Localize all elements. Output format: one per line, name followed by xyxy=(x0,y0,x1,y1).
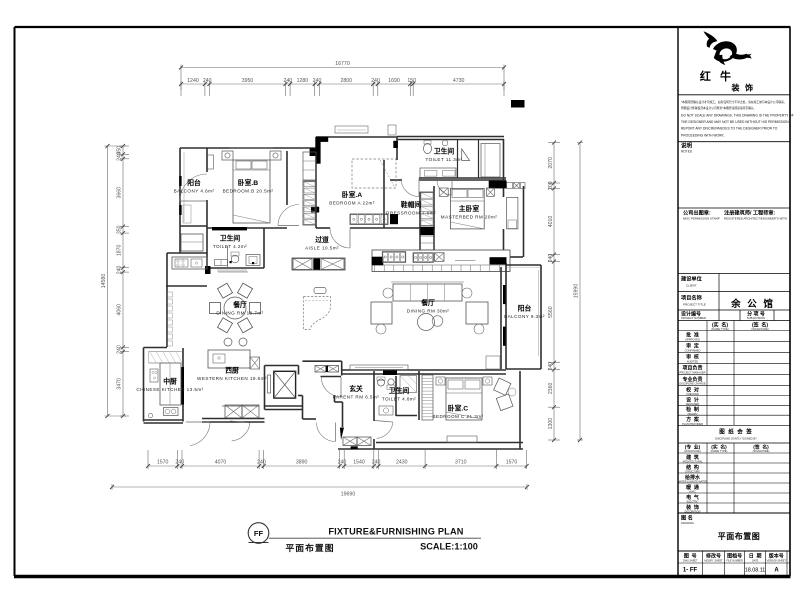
svg-text:3660: 3660 xyxy=(116,187,122,199)
svg-text:DRESSROOM 7.6m²: DRESSROOM 7.6m² xyxy=(386,211,436,216)
svg-text:DRAWN: DRAWN xyxy=(688,412,698,416)
svg-text:240: 240 xyxy=(116,345,122,354)
svg-text:过道: 过道 xyxy=(315,235,329,244)
svg-text:BEDROOM A 22m²: BEDROOM A 22m² xyxy=(329,201,375,206)
svg-text:AISLE 10.5m²: AISLE 10.5m² xyxy=(305,246,339,251)
svg-text:西厨: 西厨 xyxy=(225,366,239,375)
svg-text:1870: 1870 xyxy=(116,245,122,257)
svg-text:240: 240 xyxy=(257,460,266,466)
svg-text:3710: 3710 xyxy=(455,460,467,466)
svg-text:PROJECT NUMBER: PROJECT NUMBER xyxy=(681,316,706,320)
svg-text:注册建筑师/ 工程师章:: 注册建筑师/ 工程师章: xyxy=(724,209,776,217)
svg-text:STRUCTURE: STRUCTURE xyxy=(685,470,700,473)
svg-text:14580: 14580 xyxy=(101,274,107,289)
svg-text:(SIGNATURE): (SIGNATURE) xyxy=(753,449,770,453)
svg-text:卧室.A: 卧室.A xyxy=(342,190,362,199)
svg-text:卫生间: 卫生间 xyxy=(220,234,241,243)
svg-text:图档号: 图档号 xyxy=(727,553,742,560)
svg-text:18.08.11: 18.08.11 xyxy=(745,568,766,574)
svg-text:1280: 1280 xyxy=(297,78,309,84)
svg-text:2070: 2070 xyxy=(548,157,554,169)
svg-text:BEDROOM.B 20.5m²: BEDROOM.B 20.5m² xyxy=(223,189,274,194)
svg-text:(NAME TYPE): (NAME TYPE) xyxy=(711,449,728,453)
svg-text:1570: 1570 xyxy=(157,460,169,466)
svg-text:公司出图章:: 公司出图章: xyxy=(683,209,711,217)
svg-text:2430: 2430 xyxy=(396,460,408,466)
svg-text:4060: 4060 xyxy=(116,304,122,316)
svg-text:240: 240 xyxy=(313,78,322,84)
svg-text:图 号: 图 号 xyxy=(684,553,697,560)
svg-text:240: 240 xyxy=(175,460,184,466)
svg-text:TOILET 4.2m²: TOILET 4.2m² xyxy=(213,244,247,249)
svg-text:240: 240 xyxy=(203,78,212,84)
svg-text:饰: 饰 xyxy=(745,83,753,93)
svg-text:CHINESE KITCHEN 13.5m²: CHINESE KITCHEN 13.5m² xyxy=(136,387,203,392)
svg-text:PARENT RM 6.5m²: PARENT RM 6.5m² xyxy=(333,395,379,400)
svg-text:REPORT ANY DISCREPANCIES TO TH: REPORT ANY DISCREPANCIES TO THE DESIGNER… xyxy=(681,127,778,131)
svg-text:PROJECT TITLE: PROJECT TITLE xyxy=(683,303,706,307)
svg-text:FILE NUMBER: FILE NUMBER xyxy=(727,560,743,563)
svg-text:PROJECT MANAGER: PROJECT MANAGER xyxy=(680,371,706,375)
svg-text:4010: 4010 xyxy=(548,216,554,228)
svg-text:150: 150 xyxy=(407,78,416,84)
svg-text:1690: 1690 xyxy=(388,78,400,84)
svg-text:NOTES: NOTES xyxy=(681,150,692,154)
svg-text:所图设计师版权归本设计公司所有*本图经试阅后请签字确认。: 所图设计师版权归本设计公司所有*本图经试阅后请签字确认。 xyxy=(681,106,756,110)
svg-text:阳台: 阳台 xyxy=(187,178,201,187)
svg-text:240: 240 xyxy=(372,460,381,466)
svg-text:MISC PERMISSION STAMP: MISC PERMISSION STAMP xyxy=(683,217,720,221)
svg-text:鞋帽间: 鞋帽间 xyxy=(401,200,422,209)
svg-text:TOILET 4.8m²: TOILET 4.8m² xyxy=(382,397,416,402)
svg-text:CONFIRMED: CONFIRMED xyxy=(685,348,701,352)
svg-text:THE DESIGNER AND MAY NOT BE US: THE DESIGNER AND MAY NOT BE USED WITHOUT… xyxy=(681,120,790,124)
svg-text:余 公 馆: 余 公 馆 xyxy=(730,298,775,310)
svg-text:FF: FF xyxy=(254,529,264,538)
svg-text:红: 红 xyxy=(700,69,711,83)
svg-text:3890: 3890 xyxy=(296,460,308,466)
svg-text:1- FF: 1- FF xyxy=(683,568,698,574)
svg-text:BALCONY 9.3m²: BALCONY 9.3m² xyxy=(504,314,545,319)
svg-text:图 纸 会 签: 图 纸 会 签 xyxy=(719,428,753,436)
svg-text:ELECTRIC: ELECTRIC xyxy=(687,500,699,503)
svg-text:PLAN PROVIDER: PLAN PROVIDER xyxy=(682,422,703,426)
svg-text:*本图须经确认设计才可施工，如有任何尺寸不详之处，请在施工前: *本图须经确认设计才可施工，如有任何尺寸不详之处，请在施工前与本设计公司联系， xyxy=(681,100,787,104)
svg-text:1570: 1570 xyxy=(506,460,518,466)
svg-text:19690: 19690 xyxy=(341,492,356,498)
svg-text:MASTERBED RM 20m²: MASTERBED RM 20m² xyxy=(441,215,497,220)
svg-text:240: 240 xyxy=(116,152,122,161)
svg-text:AUDITED: AUDITED xyxy=(687,360,699,364)
svg-text:MODIFY. SHEET: MODIFY. SHEET xyxy=(704,560,723,563)
svg-text:DRAWING: DRAWING xyxy=(681,521,694,525)
svg-text:DINING RM 30m²: DINING RM 30m² xyxy=(407,309,450,314)
svg-text:DO NOT SCALE ANY DRAWINGS. THI: DO NOT SCALE ANY DRAWINGS. THIS DRAWING … xyxy=(681,114,794,118)
svg-text:240: 240 xyxy=(548,254,554,263)
svg-text:卫生间: 卫生间 xyxy=(434,147,455,156)
svg-text:DWG SHEET: DWG SHEET xyxy=(683,560,698,563)
svg-text:5560: 5560 xyxy=(548,306,554,318)
svg-text:BEDROOM C 21.3m²: BEDROOM C 21.3m² xyxy=(432,414,483,419)
svg-text:3470: 3470 xyxy=(116,378,122,390)
svg-text:阳台: 阳台 xyxy=(518,304,532,313)
svg-text:1540: 1540 xyxy=(353,460,365,466)
svg-text:说明: 说明 xyxy=(681,142,693,150)
svg-text:WESTERN KITCHEN 19.5m²: WESTERN KITCHEN 19.5m² xyxy=(197,376,267,381)
svg-text:ARCHITECTURAL: ARCHITECTURAL xyxy=(682,460,703,463)
svg-text:PROCEEDING WITH WORK.: PROCEEDING WITH WORK. xyxy=(681,133,725,137)
svg-text:200: 200 xyxy=(548,181,554,190)
svg-text:装: 装 xyxy=(731,83,740,93)
svg-text:餐厅: 餐厅 xyxy=(420,298,435,307)
svg-text:修改号: 修改号 xyxy=(705,553,721,560)
svg-text:项目名称: 项目名称 xyxy=(681,294,703,302)
svg-text:CHECKED: CHECKED xyxy=(686,392,699,396)
svg-text:日 期: 日 期 xyxy=(749,553,762,560)
svg-text:240: 240 xyxy=(548,362,554,371)
svg-text:2800: 2800 xyxy=(340,78,352,84)
svg-text:主卧室: 主卧室 xyxy=(459,204,480,213)
svg-text:240: 240 xyxy=(283,78,292,84)
svg-text:卫生间: 卫生间 xyxy=(389,386,410,395)
svg-text:SCALE:1:100: SCALE:1:100 xyxy=(420,542,478,552)
svg-text:CLIENT: CLIENT xyxy=(686,284,697,288)
svg-text:1300: 1300 xyxy=(548,418,554,430)
svg-text:WATER & WASTE WATER: WATER & WASTE WATER xyxy=(678,480,707,483)
svg-text:240: 240 xyxy=(116,265,122,274)
svg-text:A: A xyxy=(774,568,779,574)
svg-text:DESIGNED: DESIGNED xyxy=(686,402,700,406)
svg-text:TOILET 11.3m²: TOILET 11.3m² xyxy=(426,157,463,162)
svg-text:餐厅: 餐厅 xyxy=(232,300,247,309)
svg-text:APPROVED: APPROVED xyxy=(685,338,700,342)
svg-text:卧室.C: 卧室.C xyxy=(448,404,468,413)
svg-text:图 名: 图 名 xyxy=(681,514,693,522)
svg-text:版本号: 版本号 xyxy=(769,553,784,560)
svg-text:16770: 16770 xyxy=(335,61,350,67)
svg-text:中厨: 中厨 xyxy=(163,377,177,386)
svg-text:牛: 牛 xyxy=(720,69,731,83)
svg-text:4070: 4070 xyxy=(215,460,227,466)
svg-text:DISCIPLINE CHARGE: DISCIPLINE CHARGE xyxy=(679,382,706,386)
svg-text:DISCIPLINE JOINTLY SIGNED BY: DISCIPLINE JOINTLY SIGNED BY xyxy=(715,437,757,441)
svg-text:卧室.B: 卧室.B xyxy=(238,178,258,187)
svg-text:2360: 2360 xyxy=(548,383,554,395)
svg-text:3950: 3950 xyxy=(242,78,254,84)
svg-text:DINING RM 18.7m²: DINING RM 18.7m² xyxy=(216,311,263,316)
svg-text:4730: 4730 xyxy=(453,78,465,84)
svg-text:FIXTURE&FURNISHING PLAN: FIXTURE&FURNISHING PLAN xyxy=(328,527,463,537)
svg-text:240: 240 xyxy=(338,460,347,466)
svg-text:平面布置图: 平面布置图 xyxy=(286,542,335,553)
svg-text:HVAC: HVAC xyxy=(689,490,696,493)
svg-text:REGISTERED ARCHITECT/ENGINEER": REGISTERED ARCHITECT/ENGINEER"S WITH xyxy=(724,217,787,221)
svg-text:240: 240 xyxy=(371,78,380,84)
svg-text:平面布置图: 平面布置图 xyxy=(718,531,761,541)
svg-text:DATE: DATE xyxy=(752,560,759,563)
svg-text:SUB-DIVISION: SUB-DIVISION xyxy=(747,316,765,320)
svg-text:BALCONY 4.6m²: BALCONY 4.6m² xyxy=(174,189,215,194)
svg-text:VERSION SHEET: VERSION SHEET xyxy=(767,560,787,563)
svg-text:建设单位: 建设单位 xyxy=(681,275,703,283)
svg-text:350: 350 xyxy=(116,225,122,234)
svg-text:玄关: 玄关 xyxy=(349,384,363,393)
svg-text:15990: 15990 xyxy=(573,284,579,299)
svg-text:(DISCIPLINE): (DISCIPLINE) xyxy=(684,449,700,453)
svg-text:1240: 1240 xyxy=(187,78,199,84)
